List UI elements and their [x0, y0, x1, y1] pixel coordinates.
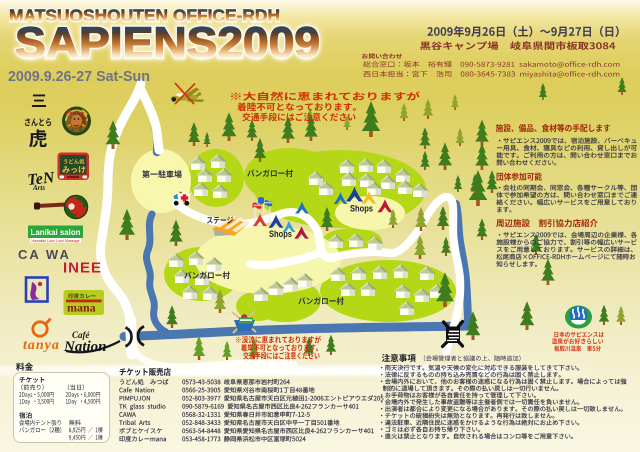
svg-text:INEE: INEE	[63, 260, 102, 277]
svg-text:mana: mana	[67, 301, 96, 315]
svg-text:tanya: tanya	[23, 338, 60, 353]
svg-text:Arts: Arts	[32, 184, 45, 192]
svg-text:Shops: Shops	[350, 204, 373, 214]
svg-text:2009.9.26-27 Sat-Sun: 2009.9.26-27 Sat-Sun	[8, 69, 150, 85]
svg-text:Hawaiian Lomi Lomi Massage: Hawaiian Lomi Lomi Massage	[32, 239, 80, 243]
svg-text:SAPIENS2009: SAPIENS2009	[15, 19, 320, 68]
svg-text:Lanikai salon: Lanikai salon	[31, 227, 81, 237]
svg-text:Shops: Shops	[269, 229, 292, 239]
